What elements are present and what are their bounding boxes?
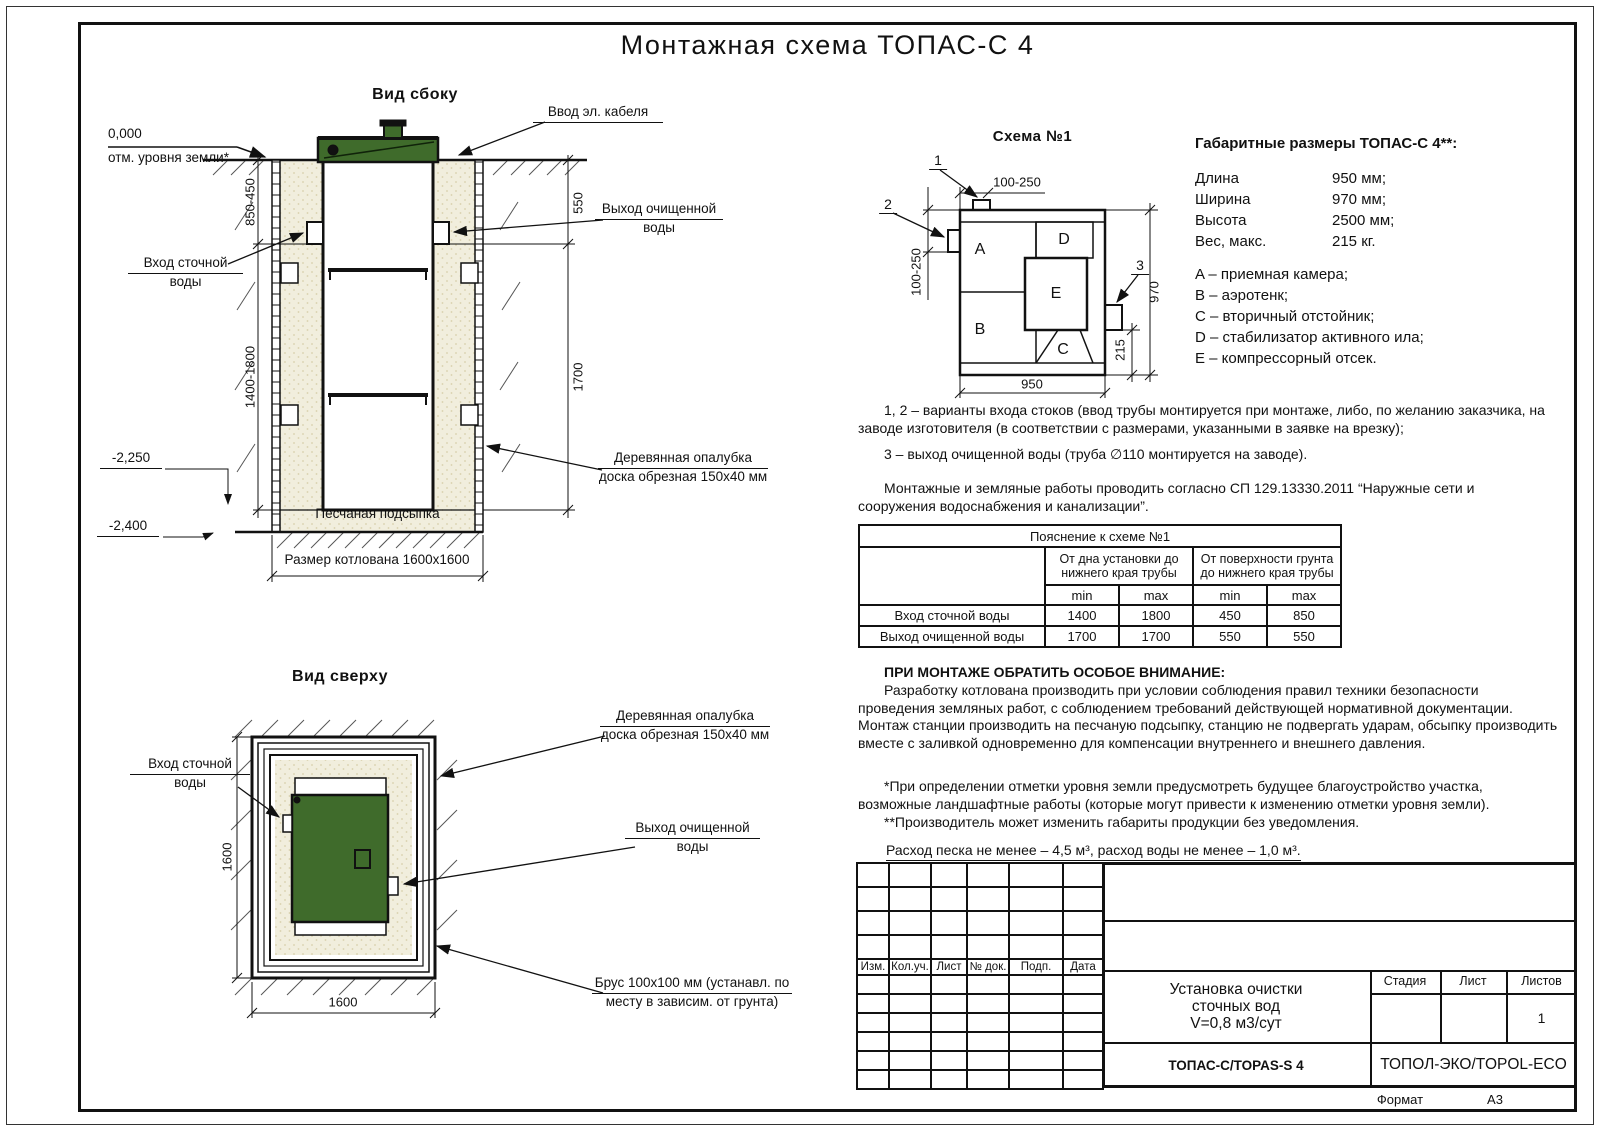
format-label: Формат [1360,1090,1440,1108]
inlet-label-side: Вход сточнойводы [128,255,243,290]
tank-lid [318,120,438,162]
schema-stub-3 [1105,305,1122,330]
elevation-2250: -2,250 [100,450,162,469]
outlet-stub-top [388,877,398,895]
spec-label-height: Высота [1195,210,1247,231]
explanation-table: Пояснение к схеме №1 От дна установки до… [858,524,1342,648]
beam-label: Брус 100х100 мм (устанавл. поместу в зав… [592,975,792,1010]
footnote-ground-level: *При определении отметки уровня земли пр… [858,778,1558,813]
schema-dim-inner: 215 [1113,339,1128,361]
sheet-header: Лист [1442,971,1504,991]
outlet-stub [433,222,449,244]
model-cell: ТОПАС-С/TOPAS-S 4 [1104,1044,1368,1086]
schema-callout-leaders [893,170,1138,302]
sand-bed-label: Песчаная подсыпка [295,506,460,523]
cable-entry-label: Ввод эл. кабеля [533,104,663,123]
dim-850-450: 850-450 [243,178,258,226]
footnote-manufacturer: **Производитель может изменить габариты … [858,814,1558,832]
outlet-label-top: Выход очищеннойводы [625,820,760,855]
inlet-stub [307,222,323,244]
compartment-d: D [1058,231,1070,249]
stage-header: Стадия [1372,971,1438,991]
schema-dim-right: 970 [1147,281,1162,303]
dim-1400-1800: 1400-1800 [243,346,258,408]
dim-1600-vertical: 1600 [220,843,235,872]
table-min-1: min [1045,585,1119,605]
spec-label-weight: Вес, макс. [1195,231,1266,252]
legend-a: A – приемная камера; [1195,264,1348,285]
table-blank-cell [859,547,1045,605]
note-outlet: 3 – выход очищенной воды (труба ∅110 мон… [858,446,1548,464]
format-value: А3 [1470,1090,1520,1108]
schema-tank [948,200,1122,375]
spec-label-width: Ширина [1195,189,1250,210]
callout-1: 1 [929,152,947,170]
top-view-title: Вид сверху [255,668,425,686]
spec-value-length: 950 мм; [1332,168,1386,189]
pit-size-label: Размер котлована 1600х1600 [277,552,477,569]
revision-header-row: Изм. Кол.уч. Лист № док. Подп. Дата [857,959,1103,975]
dim-1700: 1700 [571,363,586,392]
spec-value-height: 2500 мм; [1332,210,1394,231]
compartment-e: E [1051,285,1062,303]
elevation-2400: -2,400 [97,518,159,537]
compartment-b: B [975,321,986,339]
company-cell: ТОПОЛ-ЭКО/TOPOL-ECO [1372,1044,1575,1086]
legend-c: C – вторичный отстойник; [1195,306,1374,327]
vent-pipe [384,125,402,138]
schema-stub-1 [973,200,990,210]
table-row-inlet: Вход сточной воды 1400 1800 450 850 [859,605,1341,626]
spec-label-length: Длина [1195,168,1239,189]
schema-dim-bottom: 950 [1021,377,1043,392]
legend-d: D – стабилизатор активного ила; [1195,327,1424,348]
title-block-line-1 [1102,920,1577,922]
callout-2: 2 [879,196,897,214]
compartment-a: A [975,241,986,259]
tank-lid-top [292,795,388,922]
revision-grid: Изм. Кол.уч. Лист № док. Подп. Дата [856,862,1104,1090]
dim-1600-horizontal: 1600 [329,995,358,1010]
dim-550: 550 [571,192,586,214]
legend-b: B – аэротенк; [1195,285,1288,306]
schema-dim-top: 100-250 [993,175,1041,190]
formwork-label-top: Деревянная опалубкадоска обрезная 150х40… [600,708,770,743]
sheets-value: 1 [1508,995,1575,1040]
legend-e: E – компрессорный отсек. [1195,348,1377,369]
note-installation-standard: Монтажные и земляные работы проводить со… [858,480,1548,515]
table-row-outlet: Выход очищенной воды 1700 1700 550 550 [859,626,1341,647]
inlet-stub-top [283,815,292,832]
formwork-left [272,160,280,532]
attention-body: Разработку котлована производить при усл… [858,682,1558,752]
formwork-label-side: Деревянная опалубкадоска обрезная 150х40… [598,450,768,485]
table-title: Пояснение к схеме №1 [859,525,1341,547]
note-inlet-variants: 1, 2 – варианты входа стоков (ввод трубы… [858,402,1548,437]
specs-title: Габаритные размеры ТОПАС-С 4**: [1195,133,1457,154]
drawing-sheet: Монтажная схема ТОПАС-С 4 Вид сбоку [0,0,1600,1131]
attention-title: ПРИ МОНТАЖЕ ОБРАТИТЬ ОСОБОЕ ВНИМАНИЕ: [858,664,1558,682]
consumption-note: Расход песка не менее – 4,5 м³, расход в… [886,842,1301,860]
zero-elevation-label: 0,000 [108,126,198,143]
ground-level-note: отм. уровня земли* [108,150,248,167]
table-max-1: max [1119,585,1193,605]
callout-3: 3 [1131,257,1149,275]
table-max-2: max [1267,585,1341,605]
table-min-2: min [1193,585,1267,605]
document-title-cell: Установка очистки сточных вод V=0,8 м3/с… [1104,972,1368,1040]
schema-stub-2 [948,230,960,252]
table-group1-header: От дна установки до нижнего края трубы [1045,547,1193,585]
spec-value-width: 970 мм; [1332,189,1386,210]
table-group2-header: От поверхности грунта до нижнего края тр… [1193,547,1341,585]
tank-top [283,778,398,935]
outlet-label-side: Выход очищеннойводы [595,201,723,236]
sheets-header: Листов [1508,971,1575,991]
schema-dim-left: 100-250 [909,248,924,296]
inlet-label-top: Вход сточнойводы [130,756,250,791]
spec-value-weight: 215 кг. [1332,231,1376,252]
formwork-right [475,160,483,532]
compartment-c: C [1057,341,1069,359]
page-title: Монтажная схема ТОПАС-С 4 [78,30,1577,61]
